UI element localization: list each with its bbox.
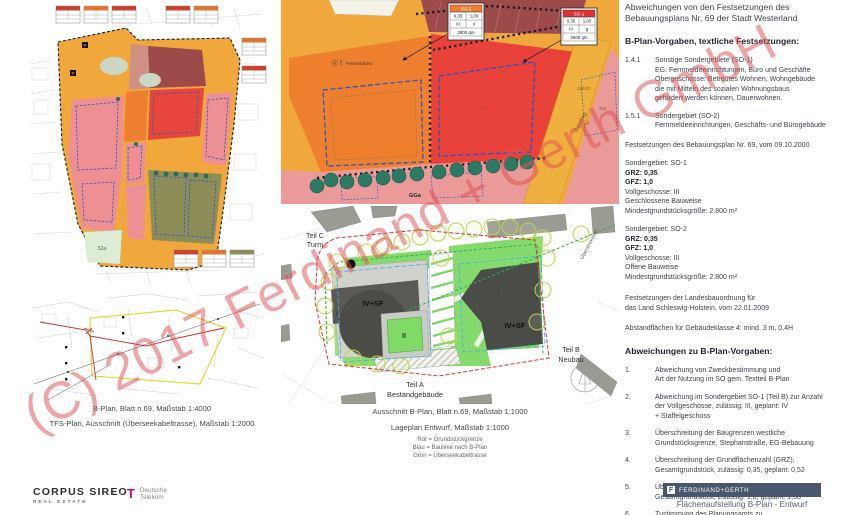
so1-title: Sondergebiet: SO-1 — [625, 159, 847, 169]
so2-details: Vollgeschosse: III Offene Bauweise Minde… — [625, 254, 847, 283]
so1-grz: GRZ: 0,35 — [625, 170, 658, 177]
p-label: P — [71, 71, 74, 76]
fernsehturm-label: Fernsehturm — [346, 61, 372, 66]
siteplan-map: Teil C Turm I IV+SF II I IV+SF Teil B Ne… — [281, 206, 619, 404]
deutsche-telekom-logo: ▪ ▪ T Deutsche Telekom — [112, 487, 167, 502]
item-number: 1.4.1 — [625, 56, 655, 104]
item-number: 4. — [625, 456, 655, 475]
survey-lines — [34, 304, 260, 400]
so2-gfz: GFZ: 1,0 — [625, 245, 653, 252]
parcel-344-label: 344 — [599, 106, 607, 111]
item-text: Sonstige Sondergebiete (SO-1) EG: Fernme… — [655, 56, 847, 104]
floor-label-II: II — [402, 333, 406, 340]
so1-info-box: SO-1 0,35 1,00 III g 2800 qm — [561, 8, 597, 45]
bplan-detail-map: Fernsehturm GGa 333 150/22 344 Bahnweg S… — [281, 0, 619, 204]
heading-abweichungen: Abweichungen zu B-Plan-Vorgaben: — [625, 346, 847, 358]
so1-floors: III — [569, 27, 573, 32]
abweichung-item: 2. Abweichung im Sondergebiet SO-1 (Teil… — [625, 393, 847, 422]
so2-area: 2800 qm — [457, 30, 474, 35]
so2-grz: 0,35 — [454, 14, 463, 19]
fg-logo-icon: F — [667, 486, 675, 494]
so1-area: 2800 qm — [570, 35, 587, 40]
landesbauordnung-note: Festsetzungen der Landesbauordnung für d… — [625, 294, 847, 313]
caption-tfs: TFS-Plan, Ausschnitt (Überseekabeltrasse… — [14, 419, 290, 428]
p-label: P — [83, 43, 86, 48]
item-number: 5. — [625, 483, 655, 502]
so1-grz: 0,35 — [567, 19, 576, 24]
caption-bplan-detail: Ausschnitt B-Plan, Blatt n.69, Maßstab 1… — [281, 407, 619, 416]
abweichung-item: 6. Zustimmung des Planungsamts zu Abstan… — [625, 510, 847, 515]
floor-label-I-left: I — [336, 311, 338, 318]
so1-parameters: Sondergebiet: SO-1 GRZ: 0,35 GFZ: 1,0 Vo… — [625, 159, 847, 216]
floor-label-right: IV+SF — [505, 321, 526, 330]
parcel-52a-label: 52a — [98, 246, 107, 252]
item-text: Zustimmung des Planungsamts zu Abstandsf… — [655, 510, 847, 515]
caption-bplan-overview: B-Plan, Blatt n.69, Maßstab 1:4000 — [28, 404, 276, 413]
caption-siteplan: Lageplan Entwurf, Maßstab 1:1000 — [281, 423, 619, 432]
gga-label: GGa — [409, 193, 422, 199]
item-number: 1. — [625, 366, 655, 385]
floor-label-left: IV+SF — [363, 299, 384, 308]
parcel-150-22-label: 150/22 — [577, 86, 591, 91]
so2-title: Sondergebiet: SO-2 — [625, 225, 847, 235]
panel-title: Abweichungen von den Festsetzungen des B… — [625, 2, 847, 23]
so2-info-box: SO-2 0,35 1,00 III o 2800 qm — [448, 3, 484, 40]
bestandgebaeude-label: Bestandgebäude — [387, 390, 443, 399]
item-number: 6. — [625, 510, 655, 515]
item-number: 1.5.1 — [625, 112, 655, 131]
abweichung-item: 3. Überschreitung der Baugrenzen westlic… — [625, 429, 847, 448]
item-text: Sondergebiet (SO-2) Fernmeldeeinrichtung… — [655, 112, 847, 131]
abstandflaechen-note: Abstandflächen für Gebäudeklasse 4: mind… — [625, 324, 847, 334]
so2-grz: GRZ: 0,35 — [625, 236, 658, 243]
so2-floors: III — [456, 22, 460, 27]
ferdinand-gerth-logo-bar: F FERDINAND+GERTH — [663, 483, 821, 497]
siteplan-color-legend: Rot = Grundstückgrenze Blau = Baulinie n… — [281, 437, 619, 460]
tfs-map — [28, 288, 266, 402]
heading-vorgaben: B-Plan-Vorgaben, textliche Festsetzungen… — [625, 36, 847, 48]
teil-b-label: Teil B — [562, 345, 580, 354]
textliche-festsetzung-item: 1.4.1 Sonstige Sondergebiete (SO-1) EG: … — [625, 56, 847, 104]
abweichung-item: 4. Überschreitung der Grundflächenzahl (… — [625, 456, 847, 475]
item-text: Abweichung von Zweckbestimmung und Art d… — [655, 366, 847, 385]
turm-label: Turm — [307, 240, 324, 249]
neubau-label: Neubau — [558, 355, 583, 364]
item-number: 2. — [625, 393, 655, 422]
parcel-333-label: 333 — [479, 106, 488, 112]
tower-marker — [346, 259, 355, 268]
so1-gfz: 1,00 — [583, 19, 592, 24]
teil-a-label: Teil A — [406, 380, 424, 389]
textliche-festsetzung-item: 1.5.1 Sondergebiet (SO-2) Fernmeldeeinri… — [625, 112, 847, 131]
annotation-panel: Abweichungen von den Festsetzungen des B… — [625, 2, 847, 515]
building-left — [331, 260, 431, 359]
bplan-note: Festsetzungen des Bebauungsplan Nr. 69, … — [625, 141, 847, 151]
so1-details: Vollgeschosse: III Geschlossene Bauweise… — [625, 188, 847, 217]
abweichung-item: 1. Abweichung von Zweckbestimmung und Ar… — [625, 366, 847, 385]
item-text: Überschreitung der Baugrenzen westliche … — [655, 429, 847, 448]
item-number: 3. — [625, 429, 655, 448]
so1-gfz: GFZ: 1,0 — [625, 179, 653, 186]
telekom-dots-icon: ▪ ▪ — [112, 491, 124, 497]
telekom-t-icon: T — [127, 487, 135, 500]
floor-label-I-right: I — [497, 288, 499, 295]
item-text: Abweichung im Sondergebiet SO-1 (Teil B)… — [655, 393, 847, 422]
so2-gfz: 1,00 — [470, 14, 479, 19]
fg-wordmark: FERDINAND+GERTH — [679, 487, 749, 494]
so1-title: SO-1 — [574, 11, 585, 16]
so2-title: SO-2 — [461, 6, 472, 11]
plan-sheet: P P 52a — [0, 0, 850, 515]
teil-c-label: Teil C — [306, 231, 324, 240]
sheet-title: Flächenaufstellung B-Plan - Entwurf — [663, 500, 821, 509]
bplan-overview-map: P P 52a — [26, 4, 268, 286]
telekom-name: Deutsche Telekom — [140, 487, 167, 502]
item-text: Überschreitung der Grundflächenzahl (GRZ… — [655, 456, 847, 475]
boundary-yellow — [90, 310, 226, 384]
survey-points — [65, 316, 180, 380]
so2-parameters: Sondergebiet: SO-2 GRZ: 0,35 GFZ: 1,0 Vo… — [625, 225, 847, 282]
